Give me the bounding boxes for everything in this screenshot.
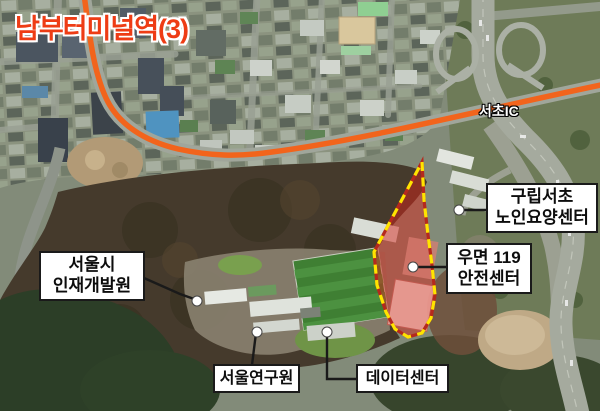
satellite-map-image	[0, 0, 600, 411]
news-map-graphic: 남부터미널역(3) 서초IC 구립서초 노인요양센터 우면 119 안전센터 서…	[0, 0, 600, 411]
